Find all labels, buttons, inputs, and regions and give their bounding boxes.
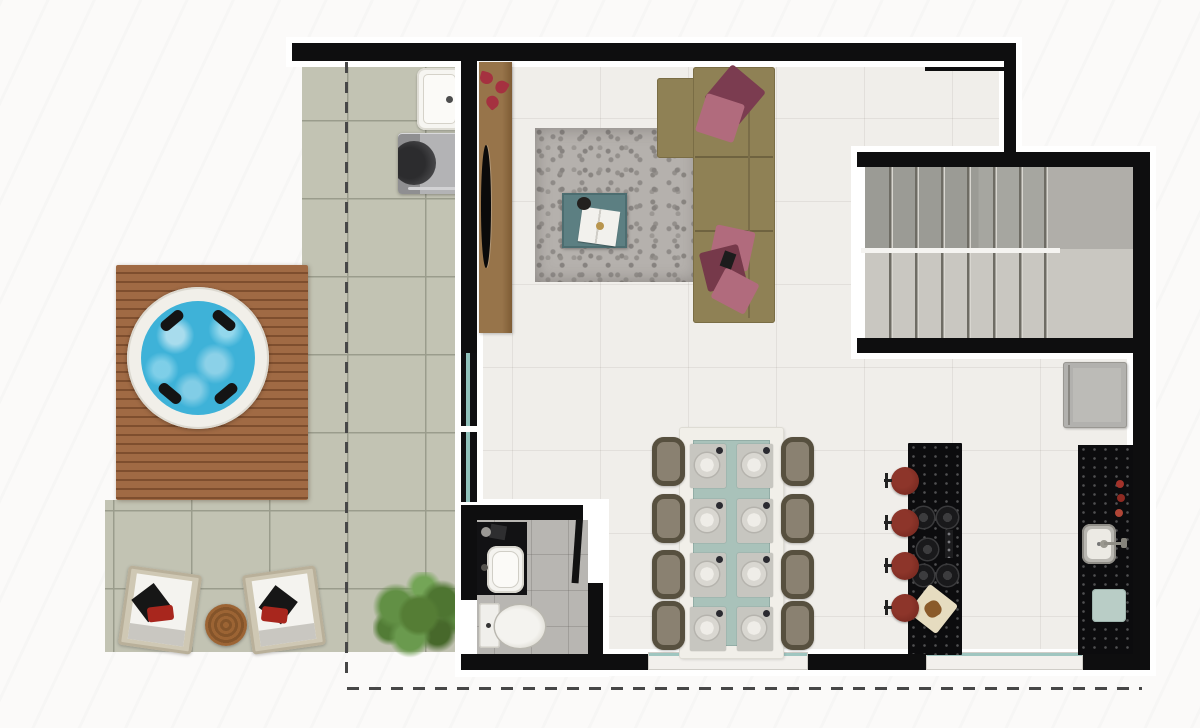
hot-tub-headrest xyxy=(211,308,238,333)
dining-chair xyxy=(652,494,685,543)
bar-stool xyxy=(891,467,919,495)
wall-top xyxy=(292,43,1016,61)
vanity-accessory xyxy=(489,524,507,541)
glass-window xyxy=(461,353,477,426)
wall-ledge-line xyxy=(925,67,1005,71)
tv xyxy=(481,145,491,268)
stair-tread-line xyxy=(1019,167,1023,251)
wall-stair-bottom xyxy=(857,338,1133,353)
place-setting xyxy=(737,553,773,597)
bottles xyxy=(1116,480,1126,520)
glass-window xyxy=(461,432,477,502)
dashed-projection-line-horizontal xyxy=(347,687,1142,690)
bar-stool xyxy=(891,509,919,537)
dining-chair xyxy=(781,494,814,543)
stair-flight-upper xyxy=(865,167,1048,251)
wall-bathroom-top xyxy=(461,505,583,520)
grill xyxy=(398,133,462,194)
hot-tub-headrest xyxy=(157,381,184,406)
stair-flight-lower xyxy=(865,252,1048,338)
wall-left-interior xyxy=(461,57,477,353)
bar-stool xyxy=(891,552,919,580)
stair-tread-line xyxy=(889,167,893,251)
round-side-table xyxy=(205,604,247,646)
bathroom-faucet xyxy=(481,564,488,571)
decor-item xyxy=(596,222,604,230)
place-setting xyxy=(737,444,773,488)
stair-tread-line xyxy=(993,167,997,251)
bathroom-sink xyxy=(487,546,524,593)
vanity-accessory xyxy=(481,527,491,537)
stair-tread-line xyxy=(967,167,971,251)
stair-tread-line xyxy=(941,252,945,338)
sofa-seam xyxy=(695,156,773,158)
wall-bottom xyxy=(461,654,648,670)
bar-stools xyxy=(883,465,919,637)
dining-chair xyxy=(652,601,685,650)
plant xyxy=(373,572,465,658)
wall-right xyxy=(1133,152,1150,670)
place-setting xyxy=(690,499,726,543)
stair-tread-line xyxy=(889,252,893,338)
hot-tub xyxy=(127,287,269,429)
dining-chair xyxy=(652,437,685,486)
wall-bottom xyxy=(1083,654,1150,670)
cooktop-burner xyxy=(937,565,958,586)
place-setting xyxy=(690,607,726,651)
bottle xyxy=(1116,480,1124,488)
wall-stair-top xyxy=(857,152,1150,167)
stair-landing xyxy=(1048,167,1133,338)
stair-tread-line xyxy=(915,167,919,251)
stair-divider xyxy=(861,248,1060,253)
dining-area xyxy=(648,426,818,658)
wall-stub xyxy=(1004,60,1016,153)
bottle xyxy=(1117,494,1125,502)
dining-chair xyxy=(781,550,814,599)
hot-tub-headrest xyxy=(159,308,186,333)
wall-bottom xyxy=(808,654,926,670)
stair-tread-line xyxy=(915,252,919,338)
lounge-chair xyxy=(242,565,326,655)
place-setting xyxy=(690,444,726,488)
stair-tread-line xyxy=(993,252,997,338)
tray xyxy=(1092,589,1126,622)
red-pillow xyxy=(147,605,175,623)
stair-tread-line xyxy=(967,252,971,338)
dining-table xyxy=(680,428,783,658)
cooktop-controls xyxy=(945,530,953,558)
bottle xyxy=(1115,509,1123,517)
place-setting xyxy=(690,553,726,597)
hot-tub-headrest xyxy=(213,381,240,406)
bar-stool xyxy=(891,594,919,622)
dining-chair xyxy=(652,550,685,599)
kitchen-faucet-head xyxy=(1121,538,1127,548)
candle xyxy=(577,197,591,210)
dashed-projection-line-vertical xyxy=(345,62,348,678)
stair-tread-line xyxy=(1019,252,1023,338)
place-setting xyxy=(737,499,773,543)
red-pillow xyxy=(261,606,289,624)
toilet-bowl xyxy=(495,605,545,648)
stair-tread-line xyxy=(941,167,945,251)
cooktop-burner xyxy=(917,539,938,560)
dining-chair xyxy=(781,437,814,486)
cooktop-burner xyxy=(937,507,958,528)
floor-plan xyxy=(0,0,1200,728)
hot-tub-water xyxy=(141,301,255,415)
fridge xyxy=(1063,362,1127,428)
dining-chair xyxy=(781,601,814,650)
lounge-chair xyxy=(118,565,202,655)
place-setting xyxy=(737,607,773,651)
